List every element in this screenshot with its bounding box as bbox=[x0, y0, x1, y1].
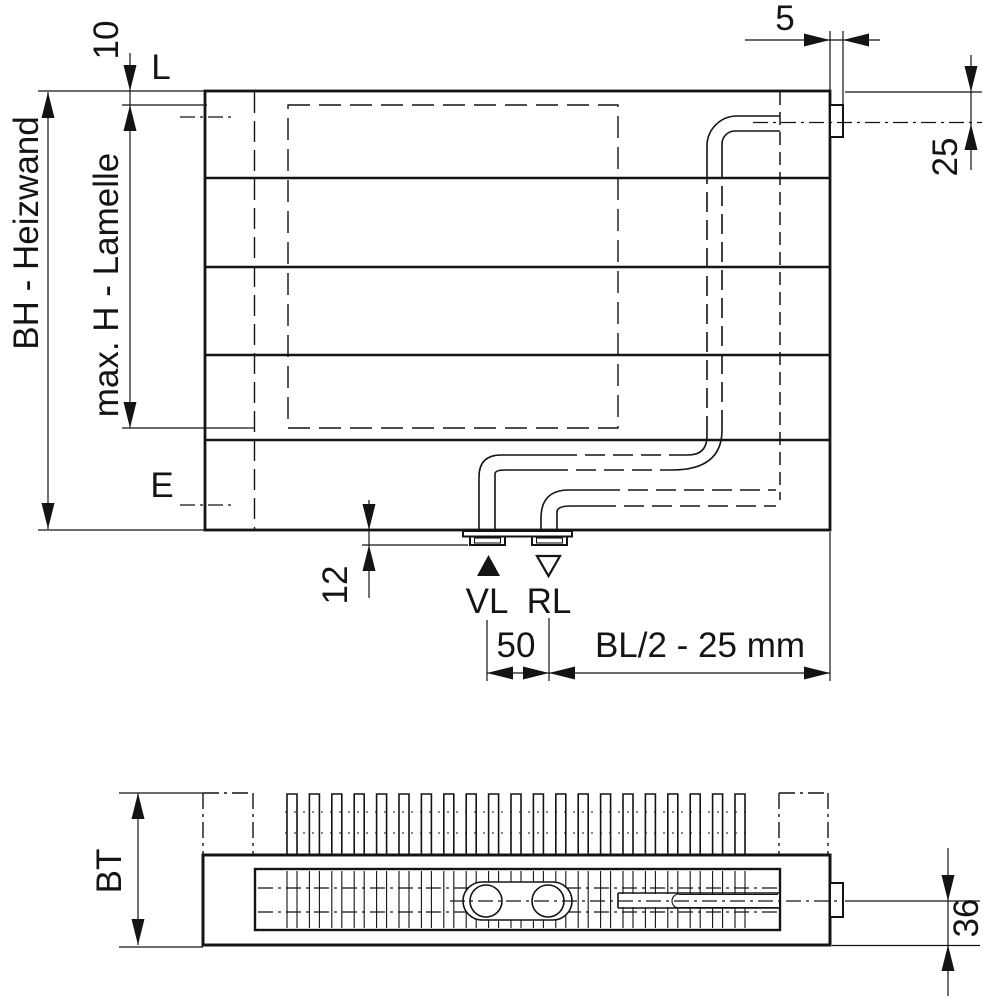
arrow-10-top bbox=[124, 65, 137, 91]
label-hanger-l: L bbox=[151, 48, 170, 87]
return-pipe-hidden bbox=[596, 490, 776, 506]
arrow-bh-bottom bbox=[42, 503, 55, 529]
label-bt: BT bbox=[90, 849, 129, 894]
label-vl: VL bbox=[466, 582, 509, 621]
side-connection-nipple bbox=[830, 105, 843, 137]
label-dim-25: 25 bbox=[926, 138, 965, 177]
arrow-50-left bbox=[487, 667, 513, 680]
front-view-dimensions: BH - Heizwand max. H - Lamelle 10 L E 5 … bbox=[7, 0, 982, 681]
arrow-25-bottom bbox=[965, 124, 978, 150]
top-fins bbox=[287, 794, 745, 855]
label-dim-36: 36 bbox=[947, 899, 986, 938]
return-direction-marker bbox=[537, 556, 560, 576]
top-view bbox=[203, 793, 843, 945]
arrow-12-bottom bbox=[363, 545, 376, 571]
arrow-12-top bbox=[363, 504, 376, 530]
label-hanger-e: E bbox=[150, 466, 173, 505]
arrow-5-left bbox=[804, 34, 830, 47]
arrow-25-top bbox=[965, 66, 978, 92]
arrow-bh-top bbox=[42, 92, 55, 118]
drawing-canvas: BH - Heizwand max. H - Lamelle 10 L E 5 … bbox=[0, 0, 1000, 1000]
label-dim-12: 12 bbox=[316, 566, 355, 605]
side-connection-nipple-top-view bbox=[830, 883, 843, 917]
arrow-5-right bbox=[843, 34, 869, 47]
front-view bbox=[180, 91, 982, 576]
channel-mask bbox=[619, 894, 779, 907]
label-dim-50: 50 bbox=[497, 626, 536, 665]
lamella-band-lines bbox=[205, 178, 830, 440]
label-dim-5: 5 bbox=[775, 0, 794, 38]
technical-drawing: BH - Heizwand max. H - Lamelle 10 L E 5 … bbox=[0, 0, 1000, 1000]
arrow-bl-right bbox=[804, 667, 830, 680]
return-pipe bbox=[541, 490, 600, 531]
hanger-axis-lines bbox=[180, 117, 982, 505]
arrow-bt-top bbox=[132, 793, 145, 819]
arrow-maxh-top bbox=[124, 105, 137, 131]
label-rl: RL bbox=[527, 582, 572, 621]
supply-direction-marker bbox=[477, 555, 500, 576]
label-max-h-lamelle: max. H - Lamelle bbox=[87, 153, 126, 418]
label-bh-heizwand: BH - Heizwand bbox=[7, 116, 46, 349]
label-dim-bl2: BL/2 - 25 mm bbox=[595, 626, 805, 665]
radiator-outline bbox=[205, 91, 830, 530]
label-dim-10: 10 bbox=[87, 21, 126, 60]
arrow-bt-bottom bbox=[132, 919, 145, 945]
bracket-phantom-right bbox=[779, 793, 828, 854]
arrow-50-right bbox=[523, 667, 549, 680]
arrow-bl-left bbox=[549, 667, 575, 680]
arrow-36-bottom bbox=[942, 945, 955, 971]
arrow-36-top bbox=[942, 875, 955, 901]
bracket-phantom-left bbox=[203, 793, 253, 854]
supply-pipe-hidden bbox=[548, 176, 722, 470]
